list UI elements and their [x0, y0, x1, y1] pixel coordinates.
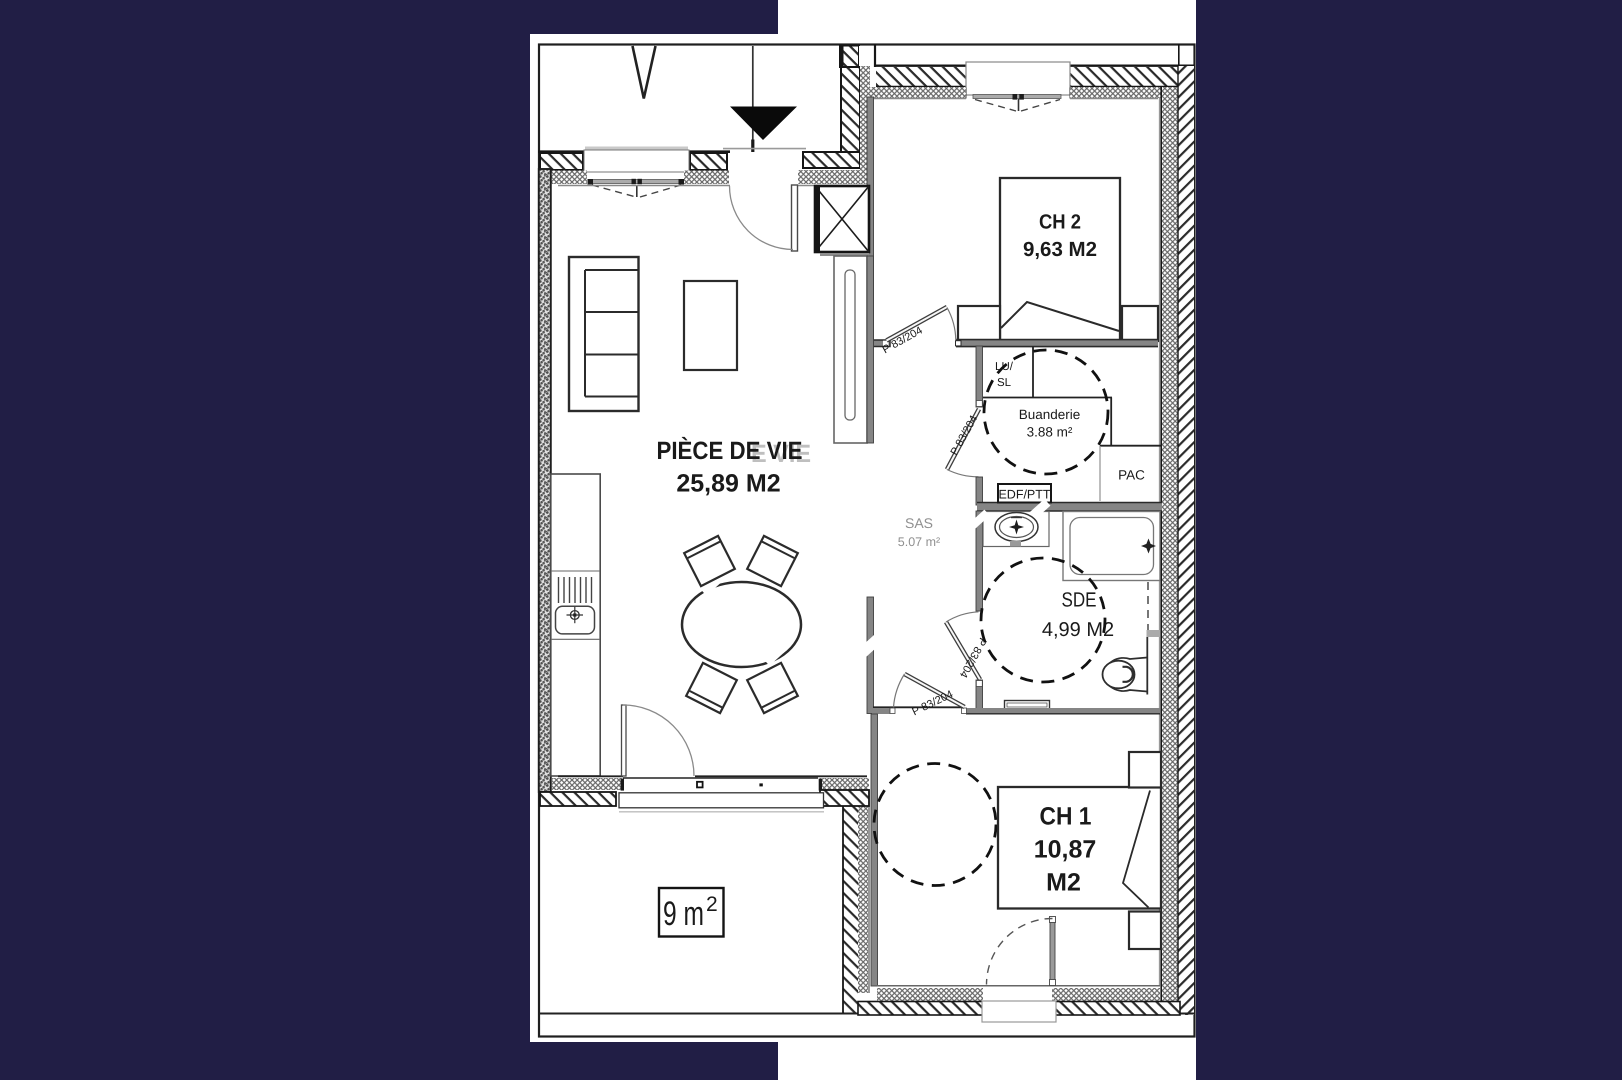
svg-text:3.88 m²: 3.88 m²: [1027, 425, 1073, 440]
svg-text:25,89 M2: 25,89 M2: [676, 470, 780, 498]
svg-text:M2: M2: [1046, 869, 1081, 897]
svg-text:SDE: SDE: [1062, 589, 1097, 612]
svg-text:SL: SL: [997, 377, 1012, 389]
svg-text:10,87: 10,87: [1034, 836, 1097, 864]
svg-text:CH 2: CH 2: [1039, 211, 1081, 234]
svg-text:2: 2: [706, 893, 718, 916]
svg-text:PIÈCE DE VIE: PIÈCE DE VIE: [657, 436, 803, 465]
svg-text:9,63 M2: 9,63 M2: [1023, 238, 1097, 261]
svg-text:SAS: SAS: [905, 515, 933, 531]
svg-text:Buanderie: Buanderie: [1019, 407, 1081, 422]
svg-text:EDF/PTT: EDF/PTT: [998, 488, 1050, 502]
svg-text:PAC: PAC: [1118, 468, 1145, 483]
svg-text:5.07 m²: 5.07 m²: [898, 535, 940, 549]
svg-text:9 m: 9 m: [663, 895, 704, 933]
svg-text:CH 1: CH 1: [1040, 803, 1092, 831]
